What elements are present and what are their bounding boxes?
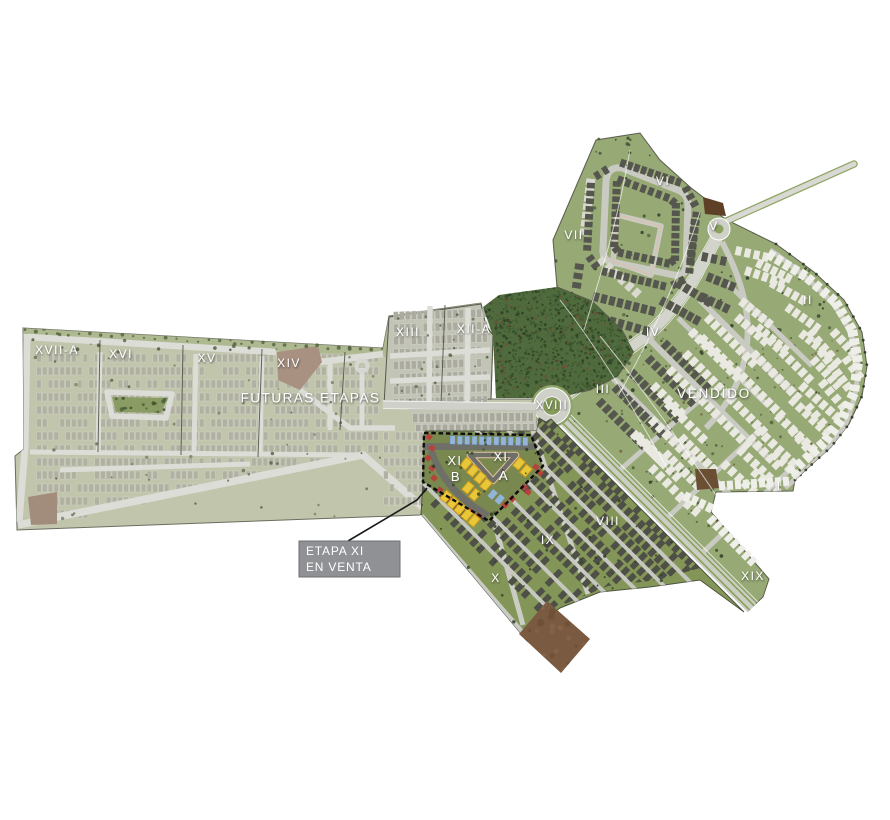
svg-text:A: A	[499, 468, 509, 483]
svg-text:XI: XI	[494, 450, 509, 464]
svg-text:XVI: XVI	[109, 347, 133, 361]
svg-text:XVIII: XVIII	[536, 400, 568, 412]
svg-text:VI: VI	[656, 174, 670, 188]
svg-text:XIX: XIX	[741, 569, 765, 583]
svg-text:II: II	[803, 293, 813, 307]
svg-text:IV: IV	[646, 325, 660, 339]
svg-text:VIII: VIII	[596, 514, 620, 528]
svg-text:XI: XI	[448, 454, 463, 468]
svg-text:XVII-A: XVII-A	[35, 343, 79, 357]
svg-text:XII-A: XII-A	[457, 322, 491, 336]
svg-text:V: V	[709, 219, 719, 233]
svg-text:I: I	[777, 479, 782, 493]
svg-text:IX: IX	[541, 533, 555, 547]
svg-text:B: B	[451, 469, 461, 484]
svg-text:FUTURAS ETAPAS: FUTURAS ETAPAS	[241, 391, 381, 406]
svg-text:XV: XV	[197, 351, 216, 365]
svg-text:III: III	[596, 382, 611, 396]
svg-text:XIII: XIII	[396, 325, 420, 339]
svg-text:X: X	[491, 571, 501, 585]
svg-text:VENDIDO: VENDIDO	[677, 386, 751, 401]
svg-text:ETAPA XI: ETAPA XI	[306, 544, 364, 558]
svg-text:XIV: XIV	[277, 356, 301, 370]
svg-text:VII: VII	[564, 228, 583, 242]
svg-text:EN VENTA: EN VENTA	[306, 560, 372, 574]
